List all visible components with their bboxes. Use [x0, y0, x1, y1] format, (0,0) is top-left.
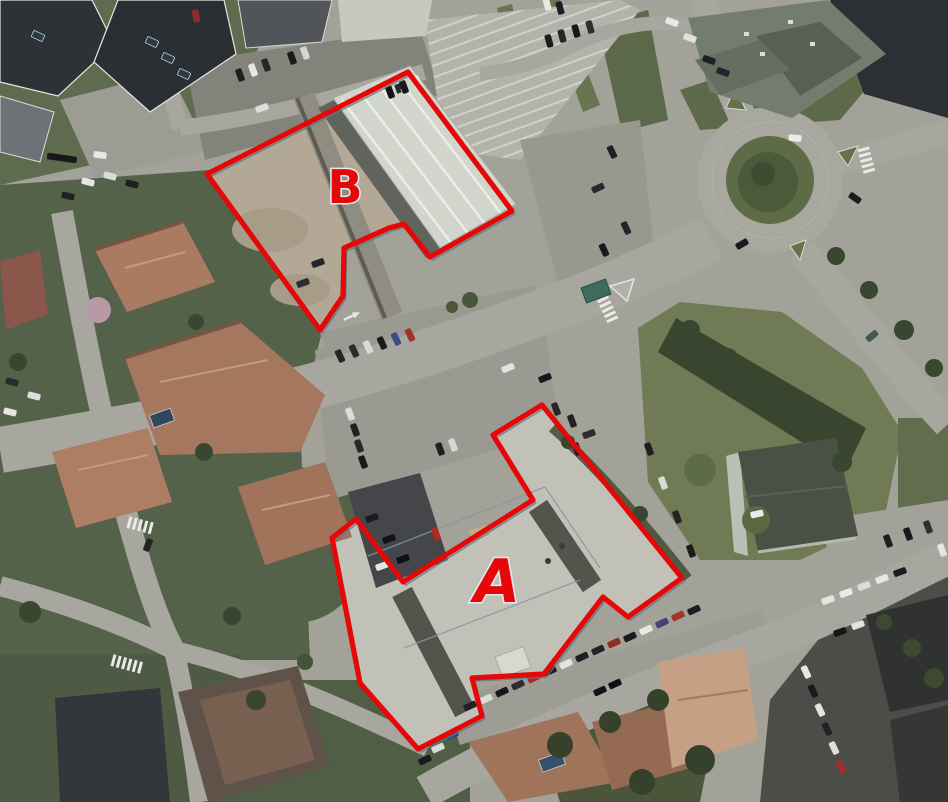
tree — [924, 668, 944, 688]
apartment-building — [238, 0, 332, 48]
tree — [876, 614, 892, 630]
tree — [599, 711, 621, 733]
parcel-b-label: B — [327, 160, 362, 214]
tree — [223, 607, 241, 625]
chimney — [744, 32, 749, 36]
garage-row — [55, 688, 170, 802]
aerial-map: A B — [0, 0, 948, 802]
tree — [894, 320, 914, 340]
tree — [860, 281, 878, 299]
light-roof-building — [338, 0, 432, 42]
chimney — [760, 52, 765, 56]
roundabout-bush — [751, 162, 775, 186]
tree — [246, 690, 266, 710]
tree — [629, 769, 655, 795]
tree — [757, 383, 779, 405]
tree — [925, 359, 943, 377]
aerial-photo-stage: A B — [0, 0, 948, 802]
chimney — [810, 42, 815, 46]
chimney — [788, 20, 793, 24]
parcel-a-label: A — [470, 547, 520, 617]
tree — [19, 601, 41, 623]
commercial-building — [890, 705, 948, 802]
hvac-unit — [559, 543, 565, 549]
tree — [647, 689, 669, 711]
tree — [9, 353, 27, 371]
bush — [462, 292, 478, 308]
tree — [685, 745, 715, 775]
tree — [188, 314, 204, 330]
vehicle — [788, 134, 802, 142]
tree — [903, 639, 921, 657]
field-blob — [684, 454, 716, 486]
tree — [195, 443, 213, 461]
tree — [795, 417, 817, 439]
tree — [297, 654, 313, 670]
blossom-tree — [85, 297, 111, 323]
tree — [832, 452, 852, 472]
tree — [547, 732, 573, 758]
bush — [446, 301, 458, 313]
tree — [680, 320, 700, 340]
field-blob — [742, 506, 770, 534]
dirt-patch — [232, 208, 308, 252]
hvac-unit — [545, 558, 551, 564]
tree — [827, 247, 845, 265]
tree — [718, 348, 738, 368]
